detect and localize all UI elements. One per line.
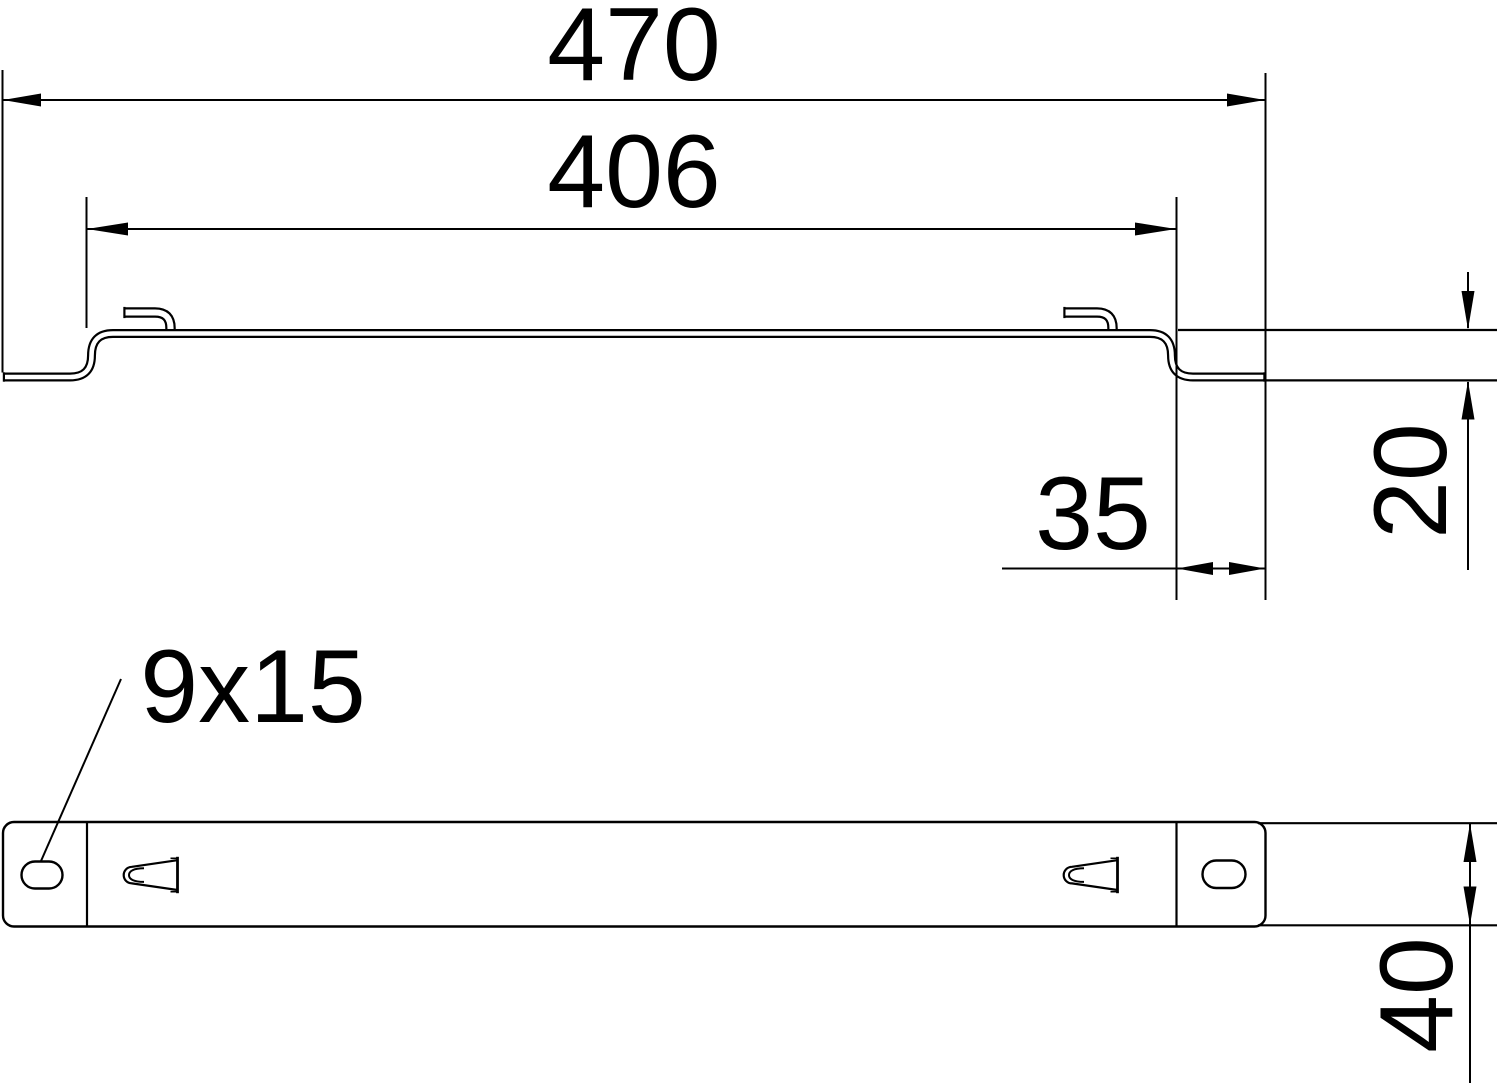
left-slot-hole xyxy=(22,862,63,889)
right-slot-hole xyxy=(1203,861,1246,889)
top-view xyxy=(3,822,1266,927)
dim-20: 20 xyxy=(1178,272,1497,570)
sheet-profile xyxy=(3,334,1265,382)
dim-40-label: 40 xyxy=(1359,937,1475,1053)
dim-470-label: 470 xyxy=(547,0,721,103)
dim-20-label: 20 xyxy=(1353,423,1469,539)
rail-outline xyxy=(3,822,1266,927)
left-lance xyxy=(124,857,178,893)
slot-callout: 9x15 xyxy=(41,629,366,861)
dim-35: 35 xyxy=(1002,456,1266,575)
dim-35-arrow-right xyxy=(1229,562,1265,575)
dim-20-arrow-up xyxy=(1462,381,1475,420)
drawing-canvas: 470 406 35 20 xyxy=(0,0,1500,1084)
right-lance xyxy=(1064,857,1118,893)
dim-35-arrow-left xyxy=(1177,562,1213,575)
dim-470-arrow-left xyxy=(3,94,41,107)
dim-40-arrow-down xyxy=(1464,887,1477,926)
slot-size-label: 9x15 xyxy=(140,629,366,745)
dim-406-label: 406 xyxy=(547,114,721,230)
dim-35-label: 35 xyxy=(1035,456,1151,572)
dim-40-arrow-up xyxy=(1464,824,1477,863)
side-view xyxy=(3,307,1265,382)
dim-406: 406 xyxy=(87,114,1177,600)
technical-drawing-page: 470 406 35 20 xyxy=(0,0,1500,1084)
dim-40: 40 xyxy=(1258,823,1497,1083)
dim-406-arrow-right xyxy=(1135,223,1176,236)
dim-470-arrow-right xyxy=(1227,94,1265,107)
slot-callout-leader xyxy=(41,679,121,861)
dim-20-arrow-down xyxy=(1462,291,1475,330)
dim-406-arrow-left xyxy=(87,223,128,236)
